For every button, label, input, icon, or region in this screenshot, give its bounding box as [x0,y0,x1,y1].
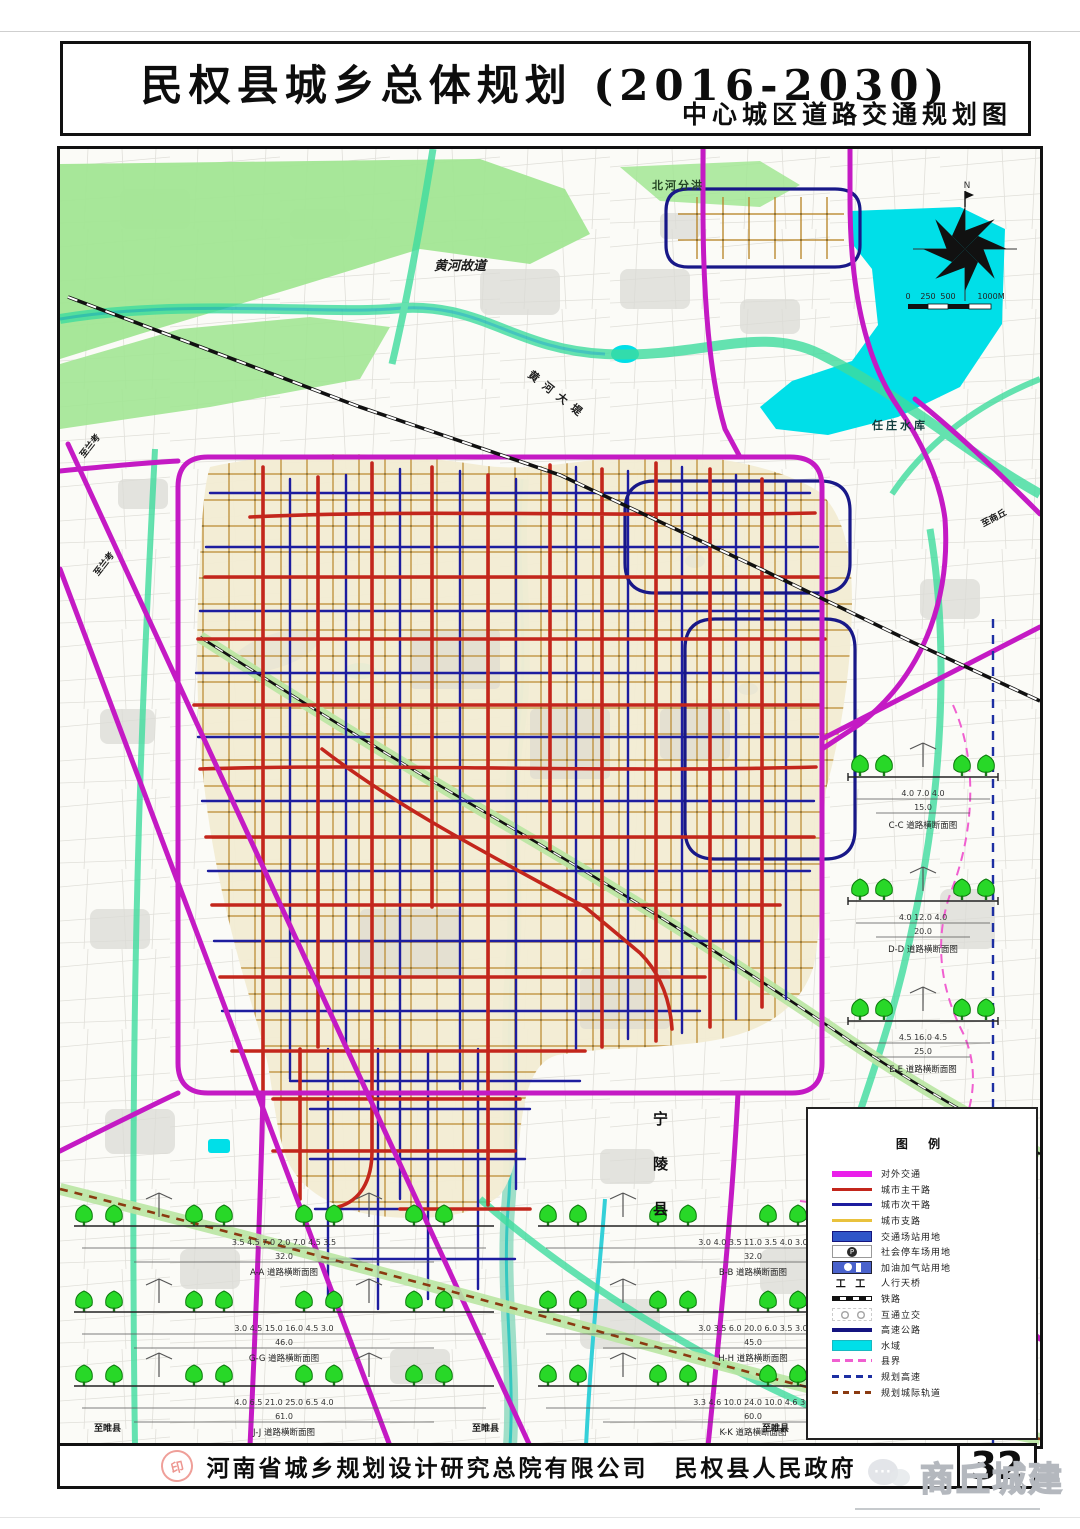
bottom-divider [855,1508,1040,1510]
planned-expressway-swatch [832,1375,872,1378]
title-block: 民权县城乡总体规划 (2016-2030) 中心城区道路交通规划图 [60,41,1031,136]
legend-item-label: 互通立交 [881,1308,921,1321]
official-seal-icon: 印 [157,1447,196,1486]
section-dims: 3.0 3.5 6.0 20.0 6.0 3.5 3.0 [698,1324,807,1333]
footer-main: 印 河南省城乡规划设计研究总院有限公司民权县人民政府 [60,1446,957,1486]
legend-item-label: 规划城际轨道 [881,1386,941,1399]
bubble-small [890,1469,910,1486]
section-dims: 4.5 16.0 4.5 [899,1033,947,1042]
top-hairline [0,31,1080,32]
legend-item: 县界 [808,1353,1036,1369]
watermark: ··· 商丘城建 [868,1452,1064,1501]
gas-station-icon [832,1261,872,1274]
legend-rows: 对外交通 城市主干路 城市次干路 城市支路 交通场站用地 社会停车场用地 加油加… [808,1166,1036,1400]
section-dims: 3.3 4.6 10.0 24.0 10.0 4.6 3.3 [693,1398,813,1407]
legend-item-label: 城市主干路 [881,1183,931,1196]
section-dims: 4.0 7.0 4.0 [901,789,944,798]
section-dims: 3.5 4.5 7.0 2.0 7.0 4.5 3.5 [232,1238,336,1247]
section-name: H-H 道路横断面图 [718,1353,788,1364]
section-total: 20.0 [914,927,932,936]
label-ningling-county: 宁陵县 [650,1111,671,1301]
label-to-suixian: 至睢县 [762,1421,789,1434]
section-total: 15.0 [914,803,932,812]
legend-item: 互通立交 [808,1306,1036,1322]
page-subtitle: 中心城区道路交通规划图 [682,95,1012,131]
label-north-river-area: 北河分洪 [652,177,704,193]
design-institute-name: 河南省城乡规划设计研究总院有限公司 [207,1455,649,1482]
county-boundary-swatch [832,1359,872,1362]
section-total: 60.0 [744,1412,762,1421]
legend-item: 交通场站用地 [808,1228,1036,1244]
footer-text: 河南省城乡规划设计研究总院有限公司民权县人民政府 [207,1449,857,1483]
legend-item: 规划高速 [808,1369,1036,1385]
planned-intercity-rail-swatch [832,1391,872,1394]
legend-item-label: 铁路 [881,1292,901,1305]
section-total: 61.0 [275,1412,293,1421]
legend-item-label: 社会停车场用地 [881,1245,951,1258]
legend-item: 城市主干路 [808,1182,1036,1198]
section-name: A-A 道路横断面图 [250,1267,318,1278]
section-dims: 4.0 6.5 21.0 25.0 6.5 4.0 [234,1398,333,1407]
label-old-yellow-river: 黄河故道 [434,255,486,274]
legend-item: 对外交通 [808,1166,1036,1182]
section-name: B-B 道路横断面图 [719,1267,787,1278]
scale-tick: 250 [920,292,935,301]
label-to-suixian: 至睢县 [472,1421,499,1434]
section-dims: 3.0 4.5 15.0 16.0 4.5 3.0 [234,1324,333,1333]
legend-item: 城市支路 [808,1213,1036,1229]
section-name: G-G 道路横断面图 [249,1353,319,1364]
wechat-bubbles-icon: ··· [868,1457,916,1497]
secondary-road-line-swatch [832,1203,872,1206]
legend-item: 加油加气站用地 [808,1260,1036,1276]
section-dims: 4.0 12.0 4.0 [899,913,947,922]
section-dims: 3.0 4.0 3.5 11.0 3.5 4.0 3.0 [698,1238,807,1247]
legend-item-label: 高速公路 [881,1323,921,1336]
railway-line-swatch [832,1296,872,1301]
title-text: 民权县城乡总体规划 [141,61,573,110]
bubble-dots: ··· [874,1465,892,1480]
scale-bar: 0 250 500 1000M [905,292,1004,309]
watermark-text: 商丘城建 [920,1452,1064,1501]
bottom-hairline [0,1517,1080,1518]
legend-item: 高速公路 [808,1322,1036,1338]
section-name: D-D 道路横断面图 [888,944,958,955]
section-name: J-J 道路横断面图 [252,1427,315,1438]
legend-item-label: 对外交通 [881,1167,921,1180]
pedestrian-bridge-icon [832,1276,872,1289]
section-total: 46.0 [275,1338,293,1347]
transport-station-swatch [832,1231,872,1242]
branch-road-line-swatch [832,1219,872,1222]
legend-item-label: 水域 [881,1339,901,1352]
section-total: 25.0 [914,1047,932,1056]
map-frame: N 0 250 500 1000M 4.0 7.0 4.0 15.0 C-C 道… [57,146,1043,1449]
legend-item: 社会停车场用地 [808,1244,1036,1260]
compass-north-label: N [964,181,971,191]
legend-item-label: 加油加气站用地 [881,1261,951,1274]
expressway-line-swatch [832,1328,872,1332]
label-renzhuang-reservoir: 任庄水库 [872,417,928,433]
scale-tick: 1000M [977,292,1004,301]
legend-item-label: 城市次干路 [881,1198,931,1211]
legend: 图 例 对外交通 城市主干路 城市次干路 城市支路 交通场站用地 社会停车场用地… [806,1107,1038,1440]
label-to-suixian: 至睢县 [94,1421,121,1434]
government-name: 民权县人民政府 [675,1455,857,1482]
legend-item-label: 县界 [881,1354,901,1367]
section-total: 45.0 [744,1338,762,1347]
legend-item: 水域 [808,1338,1036,1354]
water-area-swatch [832,1340,872,1351]
parking-lot-icon [832,1245,872,1258]
scale-tick: 0 [905,292,910,301]
legend-item: 规划城际轨道 [808,1384,1036,1400]
section-name: E-E 道路横断面图 [889,1064,957,1075]
arterial-road-line-swatch [832,1188,872,1191]
legend-item: 城市次干路 [808,1197,1036,1213]
legend-item: 人行天桥 [808,1275,1036,1291]
legend-item-label: 人行天桥 [881,1276,921,1289]
section-total: 32.0 [275,1252,293,1261]
section-name: C-C 道路横断面图 [889,820,958,831]
scale-tick: 500 [940,292,955,301]
interchange-icon [832,1308,872,1321]
legend-item-label: 规划高速 [881,1370,921,1383]
legend-item-label: 交通场站用地 [881,1230,941,1243]
external-traffic-line-swatch [832,1171,872,1177]
section-total: 32.0 [744,1252,762,1261]
legend-item: 铁路 [808,1291,1036,1307]
legend-item-label: 城市支路 [881,1214,921,1227]
legend-title: 图 例 [808,1135,1036,1152]
